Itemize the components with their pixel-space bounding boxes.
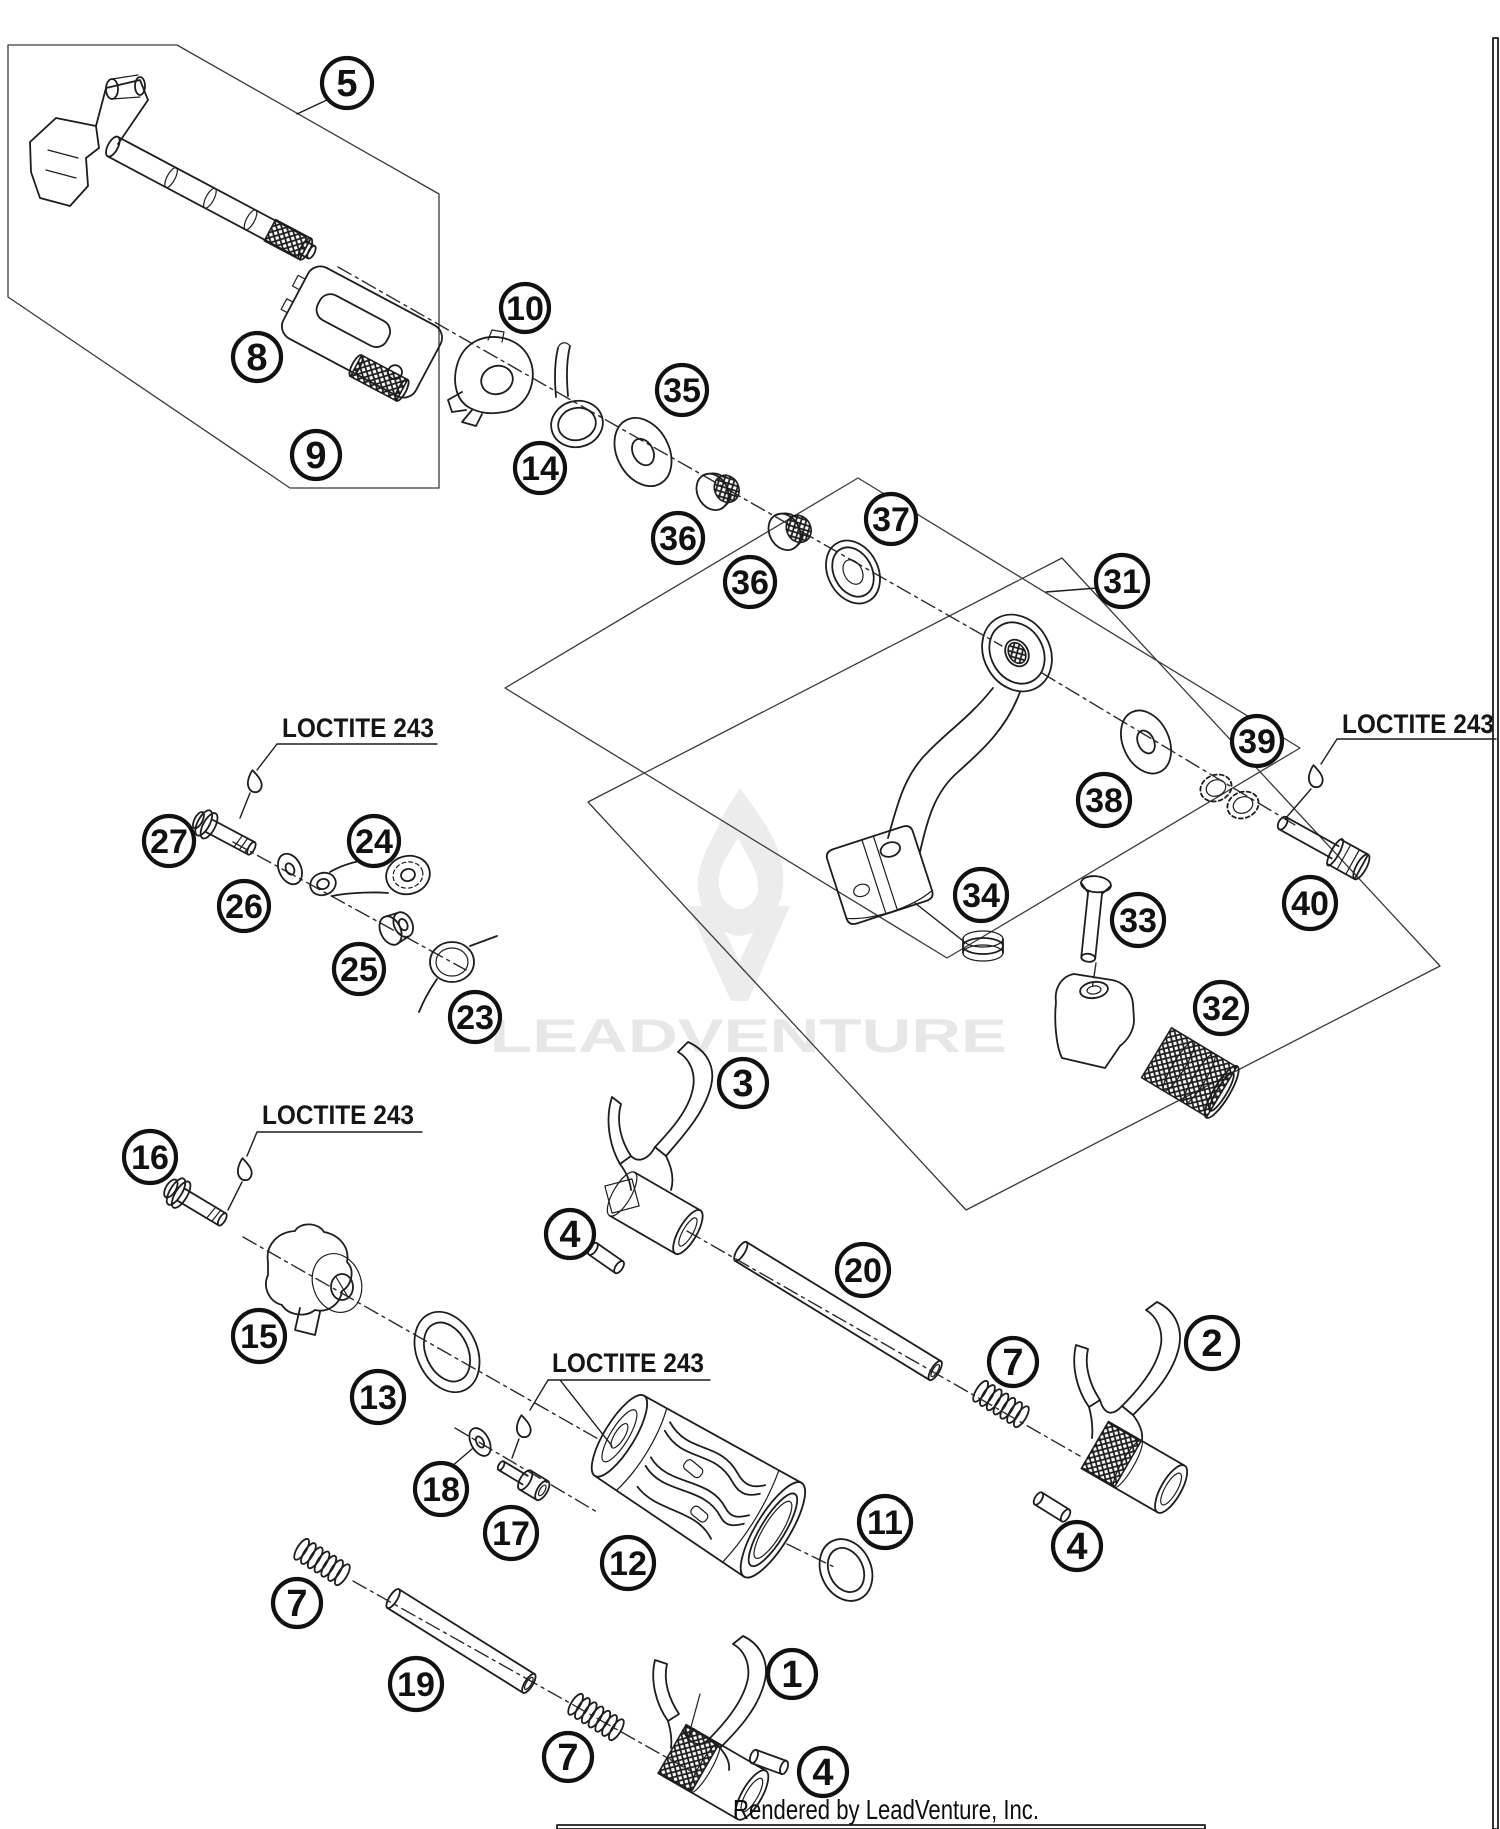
svg-text:23: 23 [456,999,494,1037]
svg-text:35: 35 [663,372,701,410]
loctite-drop-icon [246,769,263,793]
svg-text:19: 19 [397,1666,435,1704]
leadventure-watermark-text: LEADVENTURE [490,1009,1007,1062]
svg-text:5: 5 [336,63,357,105]
part-shift-shaft [30,75,320,264]
svg-text:36: 36 [659,520,697,558]
part-screw-17 [493,1455,552,1502]
part-bushing-36a [690,463,744,516]
svg-text:39: 39 [1238,723,1276,761]
callout-34[interactable]: 34 [955,869,1007,921]
part-roller-25 [375,907,418,948]
svg-text:8: 8 [246,337,267,379]
svg-text:25: 25 [340,951,378,989]
loctite-drop-icon [236,1157,253,1181]
svg-text:17: 17 [492,1515,530,1553]
svg-text:33: 33 [1119,902,1157,940]
callout-11[interactable]: 11 [859,1496,911,1548]
leader-34 [915,903,962,940]
part-pin-4c [748,1749,789,1775]
callout-9[interactable]: 9 [292,431,340,479]
exploded-parts-diagram: LEADVENTURE [0,0,1500,1829]
callout-14[interactable]: 14 [515,443,565,493]
svg-text:36: 36 [731,564,769,602]
svg-text:15: 15 [240,1318,278,1356]
callout-5[interactable]: 5 [322,58,372,108]
loctite-label: LOCTITE 243 [282,713,434,743]
callout-1[interactable]: 1 [768,1650,816,1698]
bottom-bar [557,1825,1205,1829]
callout-39[interactable]: 39 [1232,716,1282,766]
svg-text:40: 40 [1291,885,1329,923]
callout-32[interactable]: 32 [1195,982,1247,1034]
callout-38[interactable]: 38 [1078,774,1130,826]
svg-text:31: 31 [1103,563,1141,601]
callout-16[interactable]: 16 [124,1131,176,1183]
callout-12[interactable]: 12 [602,1537,654,1589]
callout-35[interactable]: 35 [657,365,707,415]
footer-credit: Rendered by LeadVenture, Inc. [733,1794,1039,1825]
svg-text:27: 27 [150,823,188,861]
part-washer-38 [1111,702,1181,781]
svg-text:7: 7 [1002,1342,1023,1384]
part-collar-screw-27 [188,806,260,862]
callout-7[interactable]: 7 [273,1579,321,1627]
callout-8[interactable]: 8 [233,333,281,381]
callout-15[interactable]: 15 [233,1310,285,1362]
callout-17[interactable]: 17 [485,1507,537,1559]
callout-37[interactable]: 37 [866,494,916,544]
callout-7[interactable]: 7 [989,1338,1037,1386]
callout-25[interactable]: 25 [334,944,384,994]
svg-text:14: 14 [521,450,559,488]
svg-text:4: 4 [812,1752,833,1794]
svg-text:20: 20 [844,1252,882,1290]
callout-7[interactable]: 7 [544,1733,592,1781]
callout-leaders [297,99,1097,592]
callout-26[interactable]: 26 [219,881,269,931]
svg-text:3: 3 [732,1063,753,1105]
callout-2[interactable]: 2 [1186,1317,1238,1369]
part-locating-guide [448,330,533,426]
callout-23[interactable]: 23 [450,992,500,1042]
svg-text:34: 34 [962,877,1000,915]
part-ring-13 [402,1301,492,1402]
part-lock-washers-39 [1196,770,1262,823]
svg-text:10: 10 [506,290,544,328]
svg-text:32: 32 [1202,990,1240,1028]
callout-13[interactable]: 13 [352,1371,404,1423]
part-spring-9 [347,353,411,402]
part-bushing-36b [762,503,816,556]
callout-4[interactable]: 4 [1053,1522,1101,1570]
part-collar-screw-16 [159,1173,233,1234]
pink-border-line [1493,38,1498,1829]
loctite-drop-icon [1307,764,1324,788]
callout-36[interactable]: 36 [653,513,703,563]
part-pin-4b [1032,1491,1072,1524]
leadventure-watermark-logo [688,788,790,1001]
callout-33[interactable]: 33 [1112,894,1164,946]
svg-text:18: 18 [422,1471,460,1509]
part-collar-screw-40 [1272,808,1373,882]
part-torsion-spring-14 [546,343,608,453]
part-spring-ring-34 [963,931,1003,961]
svg-text:26: 26 [225,888,263,926]
svg-text:11: 11 [867,1504,903,1542]
loctite-label: LOCTITE 243 [262,1100,414,1130]
callout-19[interactable]: 19 [390,1658,442,1710]
part-washer-26 [273,850,306,888]
callout-36[interactable]: 36 [725,557,775,607]
part-shift-lever [825,602,1066,926]
callout-4[interactable]: 4 [546,1210,594,1258]
svg-text:4: 4 [1066,1526,1087,1568]
svg-text:7: 7 [557,1737,578,1779]
part-shift-fork-2 [1074,1302,1193,1517]
callout-31[interactable]: 31 [1096,555,1148,607]
svg-text:9: 9 [305,435,326,477]
svg-text:24: 24 [355,823,393,861]
callout-24[interactable]: 24 [349,816,399,866]
part-washer-35 [603,408,683,496]
svg-text:16: 16 [131,1139,169,1177]
callout-27[interactable]: 27 [144,816,194,866]
svg-text:38: 38 [1085,782,1123,820]
callout-10[interactable]: 10 [501,284,549,332]
svg-text:13: 13 [359,1379,397,1417]
callout-20[interactable]: 20 [837,1244,889,1296]
callout-40[interactable]: 40 [1284,877,1336,929]
loctite-label: LOCTITE 243 [1342,709,1494,739]
callout-3[interactable]: 3 [719,1059,767,1107]
svg-text:4: 4 [559,1214,580,1256]
svg-text:1: 1 [781,1654,802,1696]
callout-4[interactable]: 4 [799,1748,847,1796]
svg-text:7: 7 [286,1583,307,1625]
svg-text:2: 2 [1201,1323,1222,1365]
callout-18[interactable]: 18 [415,1463,467,1515]
svg-text:37: 37 [872,501,910,539]
part-shift-fork-3 [602,1042,712,1258]
svg-text:12: 12 [609,1545,647,1583]
parts-diagram-page: LEADVENTURE [0,0,1500,1829]
loctite-label: LOCTITE 243 [552,1348,704,1378]
loctite-drop-icon [515,1414,532,1438]
part-pin-33 [1073,875,1112,964]
